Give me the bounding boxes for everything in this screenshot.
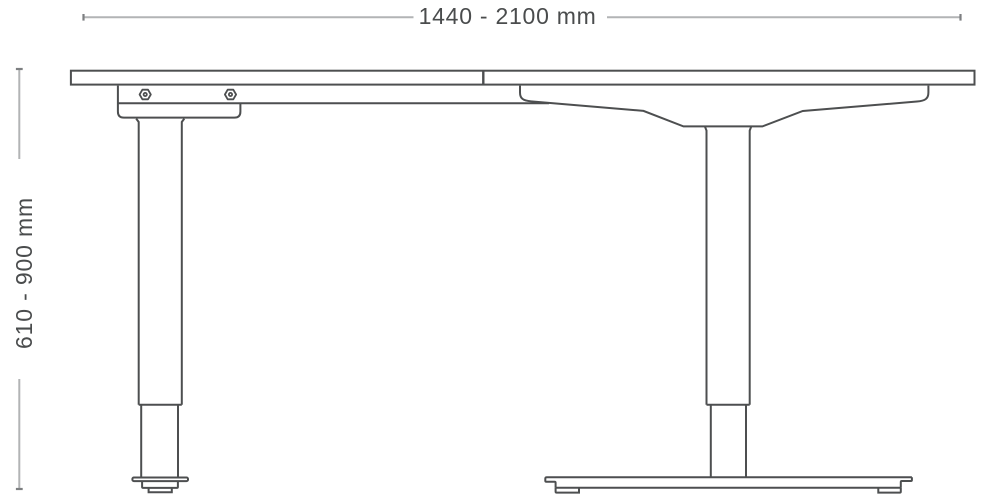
svg-text:610 - 900 mm: 610 - 900 mm xyxy=(11,197,37,349)
svg-text:1440 - 2100 mm: 1440 - 2100 mm xyxy=(419,3,597,29)
